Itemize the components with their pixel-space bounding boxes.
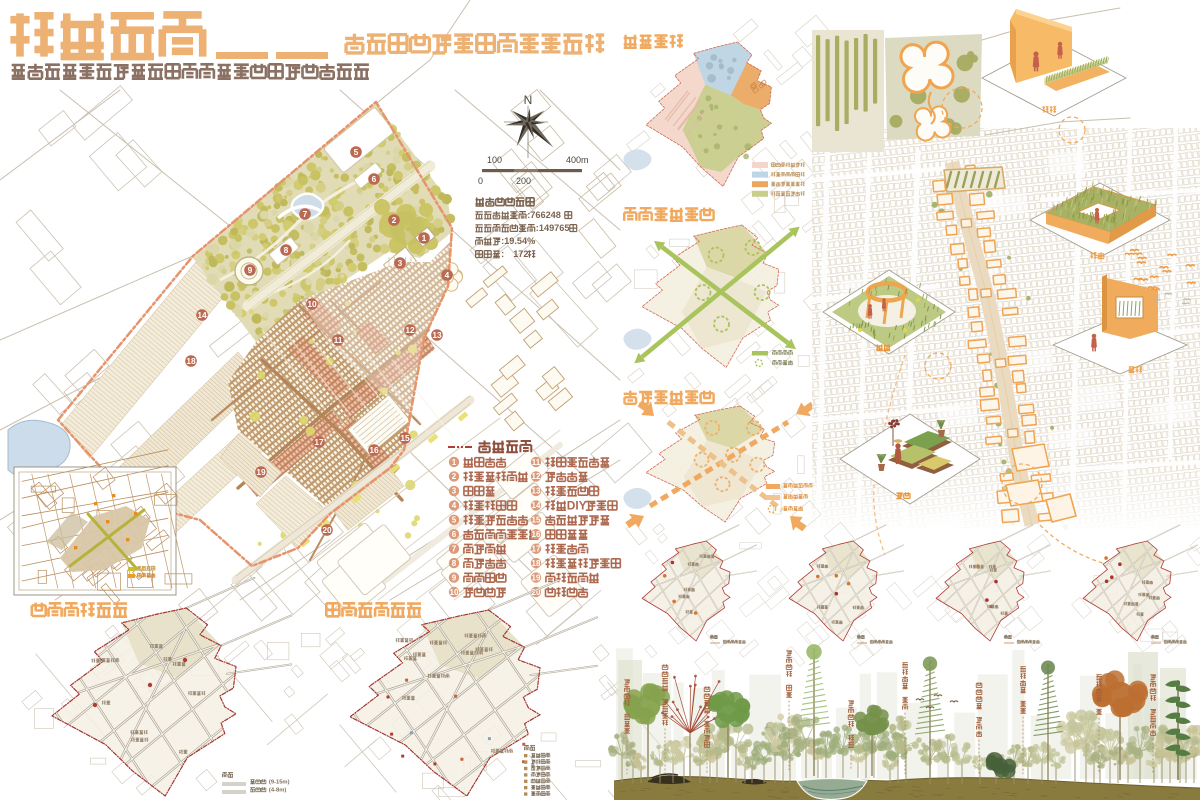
svg-text:12: 12 xyxy=(405,325,415,335)
svg-text:14: 14 xyxy=(197,310,207,320)
svg-text:17: 17 xyxy=(314,437,324,447)
svg-text:100: 100 xyxy=(487,155,502,165)
svg-text:5: 5 xyxy=(452,516,457,525)
svg-text::19.54%: :19.54% xyxy=(501,236,535,246)
svg-text:18: 18 xyxy=(186,356,196,366)
svg-text:4: 4 xyxy=(452,501,457,510)
svg-text:DIY: DIY xyxy=(567,499,587,513)
svg-text:19: 19 xyxy=(256,467,266,477)
svg-text:18: 18 xyxy=(532,559,541,568)
svg-text::: : xyxy=(501,249,504,259)
svg-text:6: 6 xyxy=(372,174,377,184)
svg-text:9: 9 xyxy=(452,573,457,582)
svg-text:5: 5 xyxy=(354,147,359,157)
svg-text:16: 16 xyxy=(369,445,379,455)
svg-text:8: 8 xyxy=(284,245,289,255)
svg-text:10: 10 xyxy=(450,588,459,597)
svg-text:172: 172 xyxy=(513,249,528,259)
svg-text:15: 15 xyxy=(532,516,541,525)
svg-text:(4-8m): (4-8m) xyxy=(269,788,286,794)
svg-text:9: 9 xyxy=(248,265,253,275)
svg-text:6: 6 xyxy=(452,530,457,539)
svg-text::766248: :766248 xyxy=(527,210,561,220)
svg-text:7: 7 xyxy=(452,545,457,554)
svg-text:10: 10 xyxy=(307,299,317,309)
svg-text:7: 7 xyxy=(303,209,308,219)
svg-text:13: 13 xyxy=(532,487,541,496)
svg-text:N: N xyxy=(524,93,533,107)
svg-text:2: 2 xyxy=(452,472,457,481)
svg-text:11: 11 xyxy=(334,335,343,345)
svg-text:20: 20 xyxy=(322,525,332,535)
svg-text:2: 2 xyxy=(392,215,397,225)
svg-text:1: 1 xyxy=(452,458,457,467)
svg-text:11: 11 xyxy=(532,458,541,467)
svg-text:13: 13 xyxy=(432,330,442,340)
svg-text:200: 200 xyxy=(516,176,531,186)
svg-text:3: 3 xyxy=(452,487,457,496)
svg-text:4: 4 xyxy=(445,270,450,280)
svg-text:16: 16 xyxy=(532,530,541,539)
svg-text:17: 17 xyxy=(532,545,541,554)
svg-text:1: 1 xyxy=(422,233,427,243)
svg-text:19: 19 xyxy=(532,573,541,582)
svg-text::149765: :149765 xyxy=(536,223,570,233)
svg-text:15: 15 xyxy=(400,433,410,443)
svg-text:0: 0 xyxy=(478,176,483,186)
svg-text:8: 8 xyxy=(452,559,457,568)
svg-text:3: 3 xyxy=(398,258,403,268)
svg-text:400m: 400m xyxy=(566,155,589,165)
svg-text:(9-15m): (9-15m) xyxy=(269,780,290,786)
svg-text:12: 12 xyxy=(532,472,541,481)
svg-text:14: 14 xyxy=(532,501,541,510)
